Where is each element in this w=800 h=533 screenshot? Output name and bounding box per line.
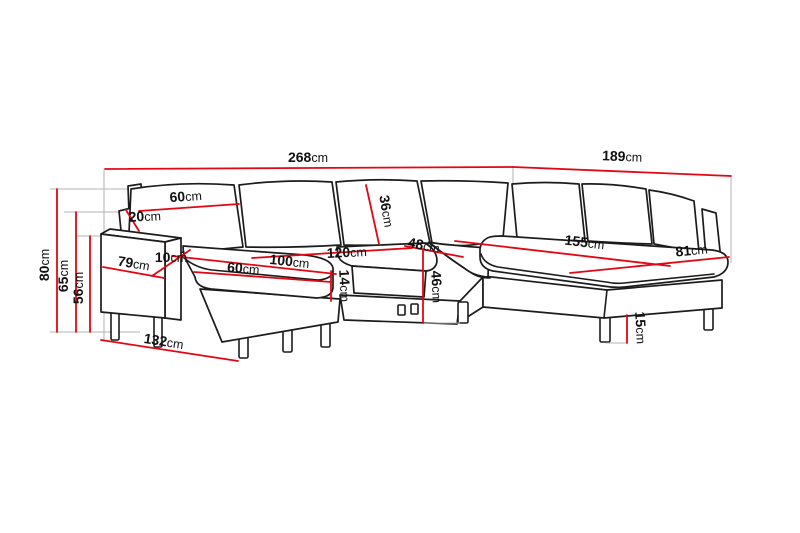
label-20: 20cm bbox=[128, 207, 161, 225]
label-10: 10cm bbox=[155, 249, 187, 265]
label-56: 56cm bbox=[70, 272, 86, 304]
label-120: 120cm bbox=[326, 243, 367, 261]
back-cushion-2 bbox=[239, 181, 341, 247]
back-cushion-5 bbox=[582, 184, 652, 244]
label-65: 65cm bbox=[55, 260, 71, 292]
label-80: 80cm bbox=[36, 249, 52, 281]
label-60-back: 60cm bbox=[169, 187, 202, 205]
label-46: 46cm bbox=[428, 270, 446, 303]
center-leg-tab-2 bbox=[411, 304, 418, 314]
corner-front-leg bbox=[458, 302, 468, 323]
label-15: 15cm bbox=[632, 311, 650, 344]
sofa-dimension-diagram: 268cm 189cm 80cm 65cm 56cm 60cm 20cm 10c… bbox=[0, 0, 800, 533]
label-268: 268cm bbox=[288, 149, 328, 165]
center-leg-tab-1 bbox=[398, 305, 405, 315]
back-cushion-6 bbox=[649, 190, 699, 252]
label-14: 14cm bbox=[336, 269, 354, 302]
label-132: 132cm bbox=[143, 330, 185, 352]
diagram-canvas: 268cm 189cm 80cm 65cm 56cm 60cm 20cm 10c… bbox=[0, 0, 800, 533]
dim-line-268 bbox=[105, 167, 513, 169]
chaise-leg-3 bbox=[321, 322, 330, 347]
middle-seat-front bbox=[352, 266, 426, 297]
label-189: 189cm bbox=[602, 147, 643, 164]
measure-brackets bbox=[423, 323, 628, 343]
dim-line-189 bbox=[513, 167, 731, 176]
label-81: 81cm bbox=[675, 240, 709, 259]
